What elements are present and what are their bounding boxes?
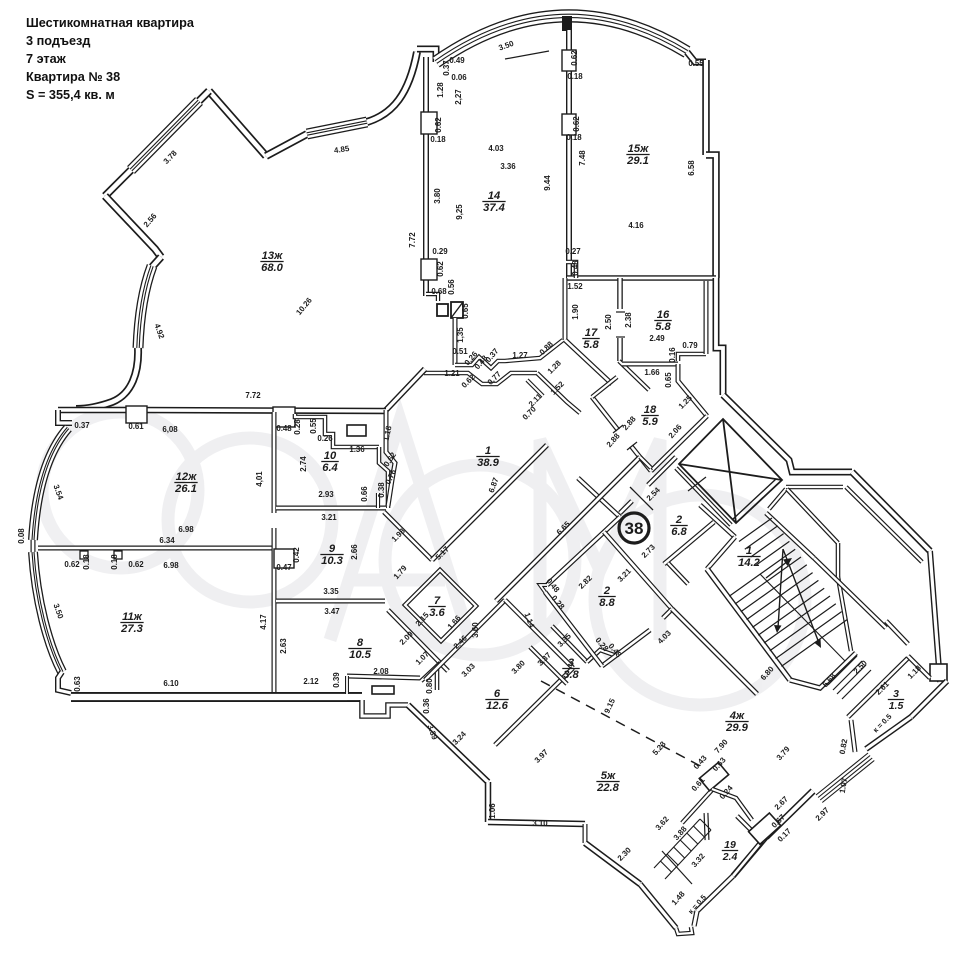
- svg-text:2.12: 2.12: [303, 677, 319, 686]
- svg-text:0.27: 0.27: [565, 247, 581, 256]
- svg-text:2,27: 2,27: [454, 89, 463, 105]
- svg-text:0.39: 0.39: [332, 672, 341, 688]
- svg-text:3.21: 3.21: [321, 513, 337, 522]
- svg-text:6: 6: [494, 688, 501, 700]
- svg-text:0.49: 0.49: [449, 56, 465, 65]
- svg-text:38.9: 38.9: [477, 457, 500, 469]
- svg-text:3: 3: [893, 688, 899, 700]
- svg-text:38: 38: [625, 519, 644, 538]
- svg-text:15ж: 15ж: [628, 143, 649, 155]
- svg-text:0.08: 0.08: [17, 528, 26, 544]
- svg-text:0.18: 0.18: [110, 554, 119, 570]
- svg-text:2.38: 2.38: [624, 312, 633, 328]
- svg-text:1.52: 1.52: [567, 282, 583, 291]
- svg-text:0.62: 0.62: [64, 560, 80, 569]
- svg-text:3.8: 3.8: [563, 669, 579, 681]
- svg-text:2.50: 2.50: [604, 314, 613, 330]
- svg-text:1.06: 1.06: [488, 803, 497, 819]
- svg-text:0.47: 0.47: [276, 563, 292, 572]
- svg-text:7.48: 7.48: [578, 150, 587, 166]
- svg-text:10.3: 10.3: [321, 555, 344, 567]
- svg-text:0.66: 0.66: [360, 486, 369, 502]
- svg-text:6.8: 6.8: [671, 526, 687, 538]
- svg-text:14: 14: [488, 190, 501, 202]
- svg-text:0.61: 0.61: [128, 422, 144, 431]
- svg-text:1.5: 1.5: [889, 700, 904, 712]
- svg-text:1.27: 1.27: [512, 351, 528, 360]
- svg-text:12.6: 12.6: [486, 700, 509, 712]
- svg-text:0.18: 0.18: [567, 72, 583, 81]
- svg-text:9,25: 9,25: [455, 204, 464, 220]
- svg-text:6.10: 6.10: [163, 679, 179, 688]
- svg-text:4.16: 4.16: [628, 221, 644, 230]
- svg-text:1: 1: [485, 445, 491, 457]
- svg-text:2.93: 2.93: [318, 490, 334, 499]
- svg-text:0.56: 0.56: [447, 279, 456, 295]
- svg-text:16: 16: [657, 309, 670, 321]
- svg-text:2: 2: [675, 514, 683, 526]
- svg-text:19: 19: [724, 839, 736, 851]
- svg-text:3.10: 3.10: [532, 819, 548, 828]
- svg-text:5.9: 5.9: [642, 416, 658, 428]
- svg-text:2.08: 2.08: [373, 667, 389, 676]
- svg-text:0.29: 0.29: [432, 247, 448, 256]
- svg-text:8: 8: [357, 637, 364, 649]
- svg-text:7.72: 7.72: [245, 391, 261, 400]
- svg-text:6.58: 6.58: [687, 160, 696, 176]
- svg-text:0.65: 0.65: [461, 303, 470, 319]
- svg-text:6,08: 6,08: [162, 425, 178, 434]
- svg-text:0.62: 0.62: [128, 560, 144, 569]
- svg-text:3 подъезд: 3 подъезд: [26, 34, 90, 48]
- svg-text:3: 3: [568, 657, 575, 669]
- svg-text:0.37: 0.37: [74, 421, 90, 430]
- svg-text:0.51: 0.51: [452, 347, 468, 356]
- svg-text:0.38: 0.38: [377, 482, 386, 498]
- svg-text:0.62: 0.62: [570, 50, 579, 66]
- svg-text:1: 1: [746, 545, 752, 557]
- svg-text:0.62: 0.62: [436, 261, 445, 277]
- svg-text:0.18: 0.18: [82, 554, 91, 570]
- svg-text:0.55: 0.55: [688, 59, 704, 68]
- svg-text:9: 9: [329, 543, 336, 555]
- svg-text:1.66: 1.66: [644, 368, 660, 377]
- svg-text:13ж: 13ж: [262, 250, 283, 262]
- svg-text:1.21: 1.21: [444, 369, 460, 378]
- svg-text:2.4: 2.4: [722, 851, 738, 863]
- svg-text:68.0: 68.0: [261, 262, 284, 274]
- svg-text:10.5: 10.5: [349, 649, 372, 661]
- svg-text:29.9: 29.9: [725, 722, 749, 734]
- svg-text:0.80: 0.80: [425, 678, 434, 694]
- svg-text:1.36: 1.36: [349, 445, 365, 454]
- svg-text:2.66: 2.66: [350, 544, 359, 560]
- svg-text:10: 10: [324, 450, 337, 462]
- svg-text:0.65: 0.65: [664, 372, 673, 388]
- svg-text:12ж: 12ж: [176, 471, 197, 483]
- svg-text:0.48: 0.48: [276, 424, 292, 433]
- svg-text:37.4: 37.4: [483, 202, 506, 214]
- svg-text:2: 2: [603, 585, 611, 597]
- svg-text:7 этаж: 7 этаж: [26, 52, 67, 66]
- svg-text:0.16: 0.16: [668, 347, 677, 363]
- svg-text:17: 17: [585, 327, 598, 339]
- svg-text:0.42: 0.42: [292, 547, 301, 563]
- svg-text:5ж: 5ж: [601, 770, 616, 782]
- svg-text:8.8: 8.8: [599, 597, 615, 609]
- svg-text:0.18: 0.18: [566, 133, 582, 142]
- svg-text:3.6: 3.6: [429, 607, 445, 619]
- svg-text:27.3: 27.3: [120, 623, 144, 635]
- svg-text:2.49: 2.49: [649, 334, 665, 343]
- svg-text:4ж: 4ж: [729, 710, 745, 722]
- svg-text:26.1: 26.1: [174, 483, 197, 495]
- svg-text:4.03: 4.03: [488, 144, 504, 153]
- svg-text:6.34: 6.34: [159, 536, 175, 545]
- svg-text:Шестикомнатная квартира: Шестикомнатная квартира: [26, 16, 195, 30]
- svg-text:9.44: 9.44: [543, 175, 552, 191]
- svg-text:7.72: 7.72: [408, 232, 417, 248]
- svg-text:0.62: 0.62: [434, 117, 443, 133]
- svg-text:6.4: 6.4: [322, 462, 338, 474]
- svg-text:0.36: 0.36: [422, 698, 431, 714]
- svg-text:22.8: 22.8: [596, 782, 620, 794]
- svg-text:0.62: 0.62: [572, 116, 581, 132]
- svg-text:0.68: 0.68: [431, 287, 447, 296]
- svg-text:0.79: 0.79: [682, 341, 698, 350]
- svg-text:0.63: 0.63: [73, 676, 82, 692]
- svg-text:3.60: 3.60: [471, 622, 480, 638]
- svg-text:3.35: 3.35: [323, 587, 339, 596]
- svg-text:0.28: 0.28: [293, 419, 302, 435]
- svg-text:0.55: 0.55: [309, 418, 318, 434]
- svg-text:1.28: 1.28: [436, 82, 445, 98]
- svg-text:29.1: 29.1: [626, 155, 649, 167]
- svg-text:5.8: 5.8: [655, 321, 671, 333]
- svg-text:1,35: 1,35: [456, 327, 465, 343]
- svg-text:0.26: 0.26: [317, 434, 333, 443]
- svg-text:Квартира № 38: Квартира № 38: [26, 70, 120, 84]
- svg-text:18: 18: [644, 404, 657, 416]
- svg-text:0.06: 0.06: [451, 73, 467, 82]
- svg-text:0.48: 0.48: [571, 260, 580, 276]
- svg-text:14.2: 14.2: [738, 557, 761, 569]
- svg-text:6.98: 6.98: [178, 525, 194, 534]
- svg-text:3.47: 3.47: [324, 607, 340, 616]
- svg-text:2.74: 2.74: [299, 456, 308, 472]
- svg-text:7: 7: [434, 595, 441, 607]
- svg-text:4.17: 4.17: [259, 614, 268, 630]
- svg-text:0.18: 0.18: [430, 135, 446, 144]
- svg-text:5.8: 5.8: [583, 339, 599, 351]
- svg-text:3.80: 3.80: [433, 188, 442, 204]
- svg-text:S = 355,4 кв. м: S = 355,4 кв. м: [26, 88, 115, 102]
- svg-text:11ж: 11ж: [122, 611, 143, 623]
- svg-text:3.36: 3.36: [500, 162, 516, 171]
- svg-text:2.63: 2.63: [279, 638, 288, 654]
- svg-text:6.98: 6.98: [163, 561, 179, 570]
- svg-text:1.90: 1.90: [571, 304, 580, 320]
- svg-text:4,01: 4,01: [255, 471, 264, 487]
